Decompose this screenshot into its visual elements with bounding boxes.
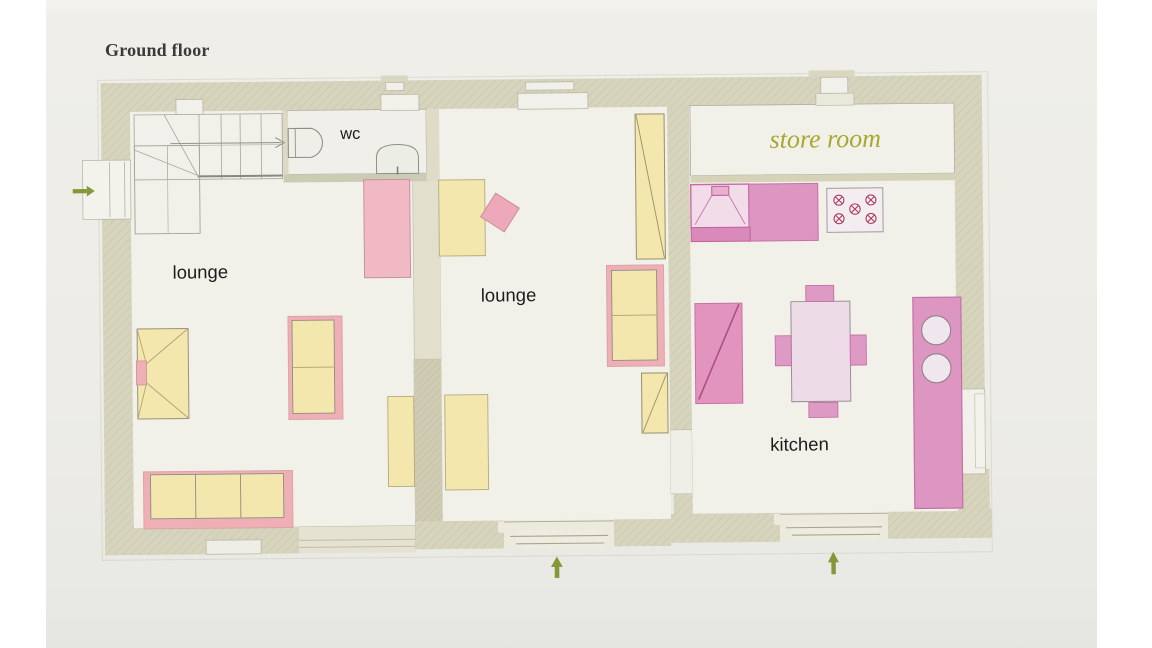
svg-text:Ground floor: Ground floor bbox=[105, 40, 210, 60]
svg-text:wc: wc bbox=[339, 125, 360, 143]
svg-text:kitchen: kitchen bbox=[770, 433, 829, 455]
svg-text:lounge: lounge bbox=[172, 261, 228, 283]
svg-text:store room: store room bbox=[769, 124, 881, 154]
svg-text:lounge: lounge bbox=[481, 284, 537, 306]
